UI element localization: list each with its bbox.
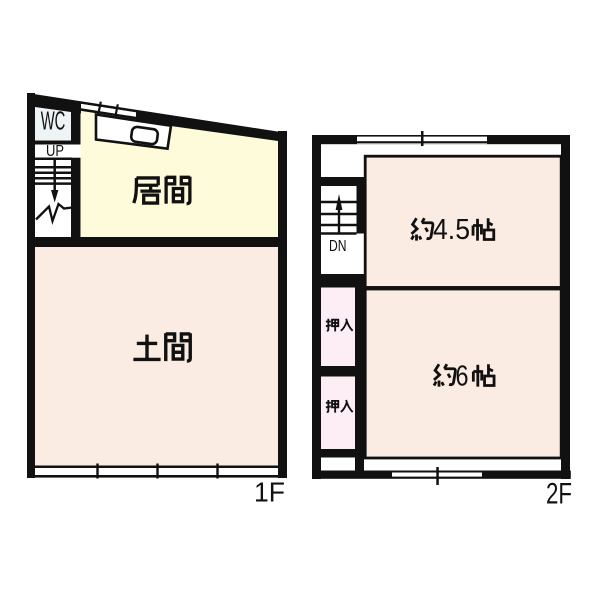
svg-text:UP: UP — [46, 143, 64, 160]
svg-text:4.5: 4.5 — [433, 214, 470, 246]
svg-text:1F: 1F — [254, 476, 285, 507]
svg-text:WC: WC — [41, 105, 66, 135]
svg-text:2F: 2F — [546, 477, 572, 510]
svg-text:DN: DN — [329, 238, 347, 255]
svg-text:6: 6 — [456, 361, 469, 393]
